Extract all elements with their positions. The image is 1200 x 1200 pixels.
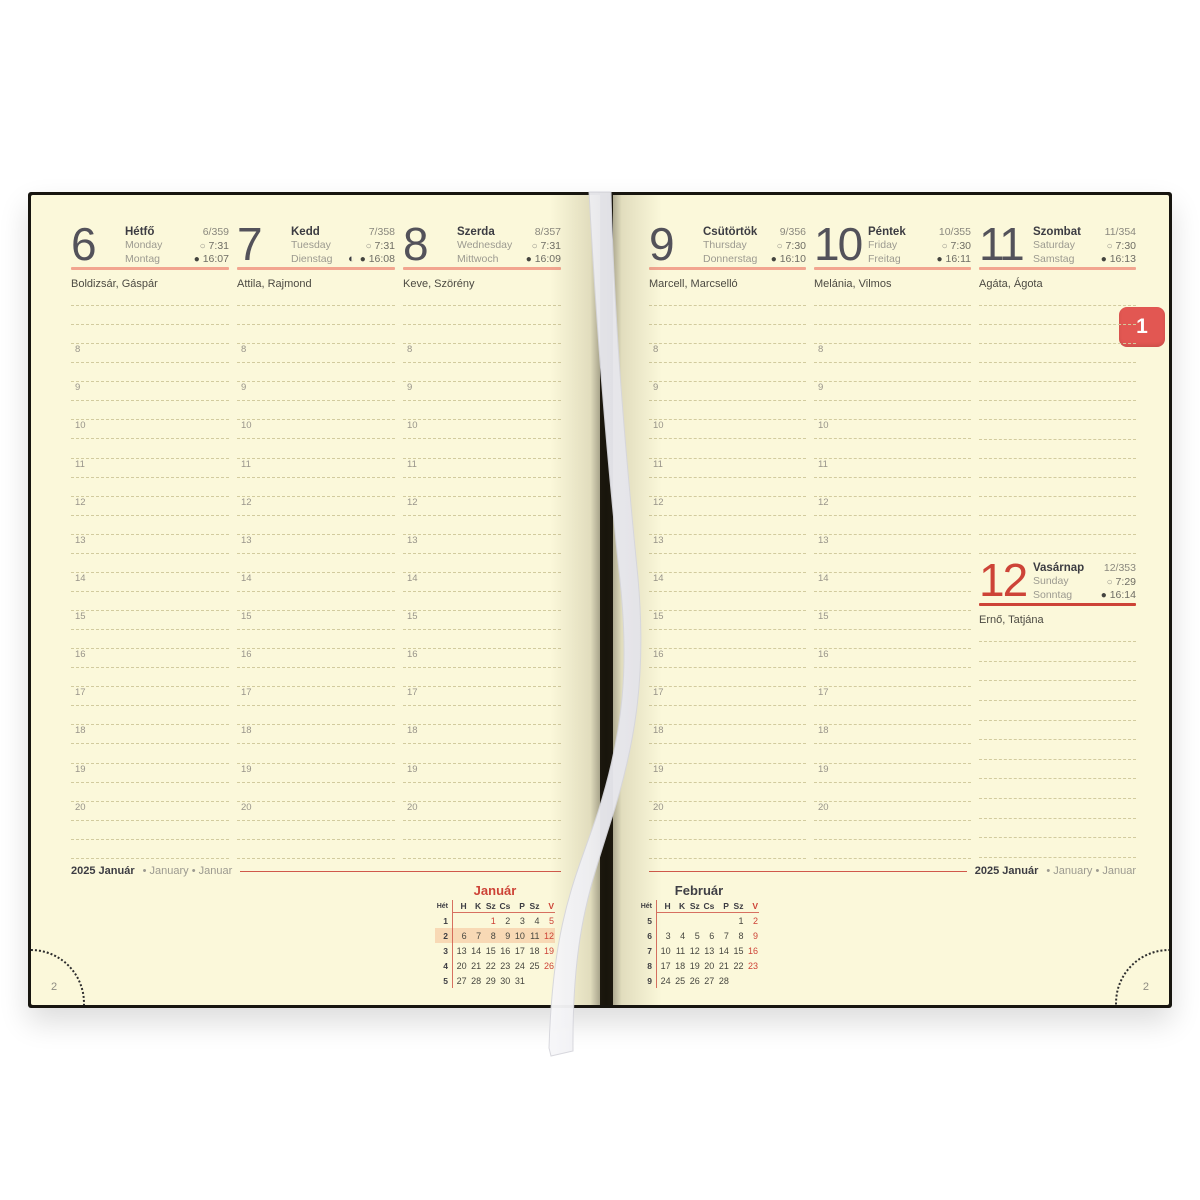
schedule-line: 16 bbox=[71, 649, 229, 668]
schedule-line bbox=[979, 838, 1136, 858]
week-days: 12 bbox=[657, 913, 759, 928]
schedule-line bbox=[979, 344, 1136, 363]
schedule-line: 10 bbox=[71, 420, 229, 439]
mini-calendar-day: 27 bbox=[453, 976, 468, 986]
sunrise-icon: ○ bbox=[777, 241, 783, 252]
weekday-header: P bbox=[511, 901, 526, 911]
schedule-line bbox=[237, 306, 395, 325]
schedule-line: 14 bbox=[237, 573, 395, 592]
day-header: 8SzerdaWednesdayMittwoch8/357○ 7:31● 16:… bbox=[403, 223, 561, 267]
schedule-rows: 891011121314151617181920 bbox=[649, 306, 806, 859]
schedule-line bbox=[71, 783, 229, 802]
schedule-line bbox=[979, 478, 1136, 497]
schedule-line: 15 bbox=[237, 611, 395, 630]
hour-label: 17 bbox=[75, 688, 86, 698]
schedule-line: 17 bbox=[814, 687, 971, 706]
mini-calendar-day: 24 bbox=[657, 976, 672, 986]
mini-calendar-day: 19 bbox=[686, 961, 701, 971]
mini-calendar-day: 28 bbox=[715, 976, 730, 986]
schedule-line bbox=[979, 681, 1136, 701]
schedule-line bbox=[649, 821, 806, 840]
footer-month-bold: 2025 Január bbox=[71, 865, 135, 877]
schedule-line bbox=[403, 630, 561, 649]
hour-label: 18 bbox=[407, 726, 418, 736]
schedule-line bbox=[649, 516, 806, 535]
schedule-rows: 891011121314151617181920 bbox=[237, 306, 395, 859]
schedule-line bbox=[649, 401, 806, 420]
sunrise-row: ○ 7:31 bbox=[348, 240, 395, 254]
mini-calendar-day: 23 bbox=[497, 961, 512, 971]
mini-calendar-day: 7 bbox=[715, 931, 730, 941]
name-day: Keve, Szörény bbox=[403, 270, 561, 306]
schedule-line bbox=[814, 840, 971, 859]
mini-calendar-day: 12 bbox=[540, 931, 555, 941]
schedule-line: 9 bbox=[71, 382, 229, 401]
mini-calendar-day: 4 bbox=[526, 916, 541, 926]
schedule-line bbox=[403, 401, 561, 420]
hour-label: 20 bbox=[75, 803, 86, 813]
schedule-line bbox=[237, 592, 395, 611]
mini-calendar-day: 23 bbox=[744, 961, 759, 971]
schedule-line: 10 bbox=[403, 420, 561, 439]
hour-label: 10 bbox=[818, 421, 829, 431]
mini-calendar-day: 3 bbox=[511, 916, 526, 926]
day-stats: 8/357○ 7:31● 16:09 bbox=[526, 223, 561, 267]
name-day: Ernő, Tatjána bbox=[979, 606, 1136, 642]
mini-calendar-day: 30 bbox=[497, 976, 512, 986]
mini-calendar-day: 19 bbox=[540, 946, 555, 956]
mini-calendar-day: 14 bbox=[468, 946, 483, 956]
day-number: 10 bbox=[814, 223, 868, 267]
hour-label: 12 bbox=[818, 498, 829, 508]
weekday-header: Sz bbox=[730, 901, 745, 911]
schedule-line: 9 bbox=[649, 382, 806, 401]
schedule-rows: 891011121314151617181920 bbox=[71, 306, 229, 859]
hour-label: 19 bbox=[241, 765, 252, 775]
mini-calendar-day: 26 bbox=[686, 976, 701, 986]
day-number: 7 bbox=[237, 223, 291, 267]
day-name-hu: Szombat bbox=[1033, 226, 1101, 239]
day-header: 6HétfőMondayMontag6/359○ 7:31● 16:07 bbox=[71, 223, 229, 267]
schedule-line: 8 bbox=[814, 344, 971, 363]
schedule-line bbox=[237, 783, 395, 802]
hour-label: 14 bbox=[75, 574, 86, 584]
schedule-line: 12 bbox=[71, 497, 229, 516]
schedule-line bbox=[403, 668, 561, 687]
schedule-line bbox=[237, 478, 395, 497]
schedule-line: 13 bbox=[71, 535, 229, 554]
schedule-line: 19 bbox=[403, 764, 561, 783]
hour-label: 18 bbox=[653, 726, 664, 736]
schedule-line: 8 bbox=[403, 344, 561, 363]
schedule-line: 17 bbox=[649, 687, 806, 706]
mini-calendar-day: 7 bbox=[468, 931, 483, 941]
sunrise-icon: ○ bbox=[1107, 241, 1113, 252]
schedule-line bbox=[649, 592, 806, 611]
weekday-header: Cs bbox=[497, 901, 512, 911]
schedule-line bbox=[71, 840, 229, 859]
week-number-corner: 2 bbox=[1143, 981, 1149, 993]
schedule-line: 12 bbox=[649, 497, 806, 516]
hour-label: 20 bbox=[653, 803, 664, 813]
schedule-line bbox=[71, 401, 229, 420]
week-column-header: Hét bbox=[435, 900, 453, 913]
hour-label: 14 bbox=[407, 574, 418, 584]
weekday-header: P bbox=[715, 901, 730, 911]
schedule-line bbox=[814, 306, 971, 325]
schedule-line bbox=[814, 668, 971, 687]
week-number: 8 bbox=[639, 958, 657, 973]
schedule-line bbox=[71, 478, 229, 497]
hour-label: 11 bbox=[407, 460, 417, 470]
schedule-line bbox=[649, 363, 806, 382]
day-names: CsütörtökThursdayDonnerstag bbox=[703, 223, 771, 267]
schedule-line: 16 bbox=[237, 649, 395, 668]
weekday-header: H bbox=[453, 901, 468, 911]
schedule-line bbox=[814, 630, 971, 649]
mini-calendar-day: 12 bbox=[686, 946, 701, 956]
schedule-line bbox=[403, 840, 561, 859]
hour-label: 11 bbox=[75, 460, 85, 470]
schedule-line bbox=[237, 516, 395, 535]
hour-label: 16 bbox=[653, 650, 664, 660]
hour-label: 20 bbox=[241, 803, 252, 813]
mini-calendar-day: 6 bbox=[701, 931, 716, 941]
schedule-line: 11 bbox=[814, 459, 971, 478]
sunrise-row: ○ 7:30 bbox=[937, 240, 971, 254]
schedule-rows bbox=[979, 642, 1136, 858]
mini-calendar-day: 21 bbox=[715, 961, 730, 971]
planner-book: 2025 Január • January • Januar JanuárHét… bbox=[28, 192, 1172, 1008]
schedule-line bbox=[814, 363, 971, 382]
day-column-6: 6HétfőMondayMontag6/359○ 7:31● 16:07Bold… bbox=[71, 223, 229, 859]
day-of-year: 11/354 bbox=[1101, 226, 1136, 240]
schedule-line bbox=[979, 799, 1136, 819]
hour-label: 10 bbox=[75, 421, 86, 431]
day-of-year: 7/358 bbox=[348, 226, 395, 240]
mini-calendar-day: 29 bbox=[482, 976, 497, 986]
schedule-line bbox=[237, 363, 395, 382]
hour-label: 16 bbox=[818, 650, 829, 660]
sunday-block: 12VasárnapSundaySonntag12/353○ 7:29● 16:… bbox=[979, 559, 1136, 858]
week-number-corner: 2 bbox=[51, 981, 57, 993]
weekday-header: Sz bbox=[526, 901, 541, 911]
day-name-en: Thursday bbox=[703, 239, 771, 253]
schedule-line bbox=[979, 535, 1136, 554]
day-name-en: Wednesday bbox=[457, 239, 526, 253]
day-name-de: Donnerstag bbox=[703, 253, 771, 267]
weekday-header: K bbox=[468, 901, 483, 911]
schedule-line: 8 bbox=[649, 344, 806, 363]
schedule-line: 18 bbox=[71, 725, 229, 744]
day-names: HétfőMondayMontag bbox=[125, 223, 194, 267]
week-number: 4 bbox=[435, 958, 453, 973]
hour-label: 12 bbox=[653, 498, 664, 508]
mini-calendar-week-row: 710111213141516 bbox=[639, 943, 759, 958]
schedule-line: 10 bbox=[237, 420, 395, 439]
sunset-row: ● 16:07 bbox=[194, 253, 229, 267]
schedule-line bbox=[979, 363, 1136, 382]
hour-label: 20 bbox=[407, 803, 418, 813]
schedule-line: 19 bbox=[71, 764, 229, 783]
hour-label: 17 bbox=[407, 688, 418, 698]
sunset-row: ● 16:09 bbox=[526, 253, 561, 267]
sunrise-row: ○ 7:29 bbox=[1101, 576, 1136, 590]
mini-calendar-day: 2 bbox=[497, 916, 512, 926]
schedule-line bbox=[237, 630, 395, 649]
schedule-line bbox=[403, 744, 561, 763]
hour-label: 11 bbox=[653, 460, 663, 470]
week-days: 10111213141516 bbox=[657, 943, 759, 958]
sunrise-row: ○ 7:31 bbox=[526, 240, 561, 254]
hour-label: 19 bbox=[818, 765, 829, 775]
hour-label: 8 bbox=[653, 345, 658, 355]
schedule-line bbox=[649, 630, 806, 649]
schedule-line: 18 bbox=[649, 725, 806, 744]
schedule-line bbox=[403, 706, 561, 725]
schedule-line: 17 bbox=[237, 687, 395, 706]
mini-calendar-title: Február bbox=[639, 883, 759, 900]
day-of-year: 8/357 bbox=[526, 226, 561, 240]
mini-calendar-day: 1 bbox=[730, 916, 745, 926]
schedule-line: 18 bbox=[814, 725, 971, 744]
hour-label: 14 bbox=[241, 574, 252, 584]
schedule-line: 11 bbox=[237, 459, 395, 478]
schedule-line bbox=[71, 592, 229, 611]
mini-calendar-day: 18 bbox=[672, 961, 687, 971]
schedule-line bbox=[649, 478, 806, 497]
mini-calendar-day: 17 bbox=[511, 946, 526, 956]
schedule-line: 12 bbox=[814, 497, 971, 516]
sunrise-row: ○ 7:30 bbox=[771, 240, 806, 254]
week-number: 5 bbox=[435, 973, 453, 988]
weekday-header: Cs bbox=[701, 901, 716, 911]
schedule-line bbox=[71, 439, 229, 458]
schedule-line bbox=[237, 706, 395, 725]
schedule-line bbox=[979, 325, 1136, 344]
day-name-en: Saturday bbox=[1033, 239, 1101, 253]
hour-label: 17 bbox=[241, 688, 252, 698]
mini-calendar-day: 25 bbox=[672, 976, 687, 986]
mini-calendar-day: 10 bbox=[657, 946, 672, 956]
mini-calendar-day: 21 bbox=[468, 961, 483, 971]
sunset-icon: ● bbox=[771, 254, 777, 265]
mini-calendar-header-row: HétHKSzCsPSzV bbox=[639, 900, 759, 913]
weekday-headers: HKSzCsPSzV bbox=[453, 900, 555, 913]
schedule-line bbox=[979, 516, 1136, 535]
schedule-line: 12 bbox=[237, 497, 395, 516]
week-days: 2425262728 bbox=[657, 973, 759, 988]
day-number: 9 bbox=[649, 223, 703, 267]
mini-calendar-day: 18 bbox=[526, 946, 541, 956]
hour-label: 13 bbox=[75, 536, 86, 546]
schedule-line: 14 bbox=[649, 573, 806, 592]
schedule-line: 20 bbox=[237, 802, 395, 821]
schedule-line bbox=[979, 497, 1136, 516]
day-name-de: Dienstag bbox=[291, 253, 348, 267]
schedule-line bbox=[71, 706, 229, 725]
schedule-line bbox=[814, 325, 971, 344]
day-column-7: 7KeddTuesdayDienstag7/358○ 7:31◐● 16:08A… bbox=[237, 223, 395, 859]
schedule-line bbox=[649, 554, 806, 573]
footer-month-bold: 2025 Január bbox=[975, 865, 1039, 877]
schedule-line bbox=[979, 819, 1136, 839]
week-number: 6 bbox=[639, 928, 657, 943]
schedule-line: 16 bbox=[814, 649, 971, 668]
mini-calendar-title: Január bbox=[435, 883, 555, 900]
sunset-icon: ● bbox=[1101, 590, 1107, 601]
hour-label: 13 bbox=[407, 536, 418, 546]
hour-label: 12 bbox=[75, 498, 86, 508]
mini-calendar-day: 22 bbox=[482, 961, 497, 971]
name-day: Melánia, Vilmos bbox=[814, 270, 971, 306]
schedule-line: 15 bbox=[649, 611, 806, 630]
schedule-line bbox=[979, 440, 1136, 459]
schedule-line bbox=[403, 821, 561, 840]
name-day: Boldizsár, Gáspár bbox=[71, 270, 229, 306]
hour-label: 9 bbox=[407, 383, 412, 393]
schedule-line: 15 bbox=[814, 611, 971, 630]
hour-label: 12 bbox=[407, 498, 418, 508]
hour-label: 18 bbox=[241, 726, 252, 736]
mini-calendar-day: 20 bbox=[453, 961, 468, 971]
sunset-icon: ● bbox=[194, 254, 200, 265]
week-number: 5 bbox=[639, 913, 657, 928]
mini-calendar-day: 11 bbox=[672, 946, 687, 956]
schedule-line bbox=[979, 721, 1136, 741]
schedule-line: 9 bbox=[403, 382, 561, 401]
sunset-icon: ● bbox=[360, 254, 366, 265]
schedule-line: 18 bbox=[237, 725, 395, 744]
week-column-header: Hét bbox=[639, 900, 657, 913]
perforated-corner-arc bbox=[31, 949, 85, 1005]
schedule-line bbox=[814, 516, 971, 535]
weekday-header: V bbox=[540, 901, 555, 911]
hour-label: 17 bbox=[818, 688, 829, 698]
day-names: SzerdaWednesdayMittwoch bbox=[457, 223, 526, 267]
right-page-footer: 2025 Január • January • Januar bbox=[649, 863, 1136, 879]
schedule-line bbox=[237, 668, 395, 687]
mini-calendar-week-row: 92425262728 bbox=[639, 973, 759, 988]
day-of-year: 9/356 bbox=[771, 226, 806, 240]
schedule-line: 20 bbox=[71, 802, 229, 821]
schedule-rows: 891011121314151617181920 bbox=[814, 306, 971, 859]
day-header: 12VasárnapSundaySonntag12/353○ 7:29● 16:… bbox=[979, 559, 1136, 603]
footer-rule bbox=[649, 871, 967, 872]
schedule-line bbox=[814, 439, 971, 458]
schedule-line: 13 bbox=[237, 535, 395, 554]
hour-label: 15 bbox=[653, 612, 664, 622]
hour-label: 13 bbox=[241, 536, 252, 546]
hour-label: 14 bbox=[653, 574, 664, 584]
week-days: 13141516171819 bbox=[453, 943, 555, 958]
schedule-line bbox=[403, 554, 561, 573]
mini-calendar-day: 4 bbox=[672, 931, 687, 941]
schedule-line: 11 bbox=[403, 459, 561, 478]
schedule-line bbox=[403, 478, 561, 497]
mini-calendar-day: 24 bbox=[511, 961, 526, 971]
schedule-line bbox=[979, 459, 1136, 478]
schedule-line bbox=[237, 744, 395, 763]
schedule-line: 14 bbox=[71, 573, 229, 592]
hour-label: 19 bbox=[407, 765, 418, 775]
schedule-line bbox=[71, 744, 229, 763]
day-name-de: Montag bbox=[125, 253, 194, 267]
schedule-line bbox=[979, 382, 1136, 401]
schedule-line bbox=[403, 439, 561, 458]
schedule-line bbox=[979, 420, 1136, 439]
mini-calendar-week-row: 817181920212223 bbox=[639, 958, 759, 973]
schedule-line bbox=[979, 662, 1136, 682]
sunrise-row: ○ 7:30 bbox=[1101, 240, 1136, 254]
day-header: 10PéntekFridayFreitag10/355○ 7:30● 16:11 bbox=[814, 223, 971, 267]
mini-calendar-day: 1 bbox=[482, 916, 497, 926]
week-days: 2728293031 bbox=[453, 973, 555, 988]
footer-rule bbox=[240, 871, 561, 872]
schedule-line bbox=[979, 401, 1136, 420]
schedule-line bbox=[237, 439, 395, 458]
schedule-line: 10 bbox=[649, 420, 806, 439]
mini-calendar-header-row: HétHKSzCsPSzV bbox=[435, 900, 555, 913]
day-name-en: Friday bbox=[868, 239, 937, 253]
schedule-line bbox=[814, 821, 971, 840]
sunset-row: ● 16:13 bbox=[1101, 253, 1136, 267]
schedule-line bbox=[649, 706, 806, 725]
schedule-line bbox=[979, 306, 1136, 325]
day-column-9: 9CsütörtökThursdayDonnerstag9/356○ 7:30●… bbox=[649, 223, 806, 859]
sunset-icon: ● bbox=[1101, 254, 1107, 265]
hour-label: 18 bbox=[75, 726, 86, 736]
hour-label: 8 bbox=[241, 345, 246, 355]
schedule-line: 19 bbox=[814, 764, 971, 783]
mini-calendar-day: 22 bbox=[730, 961, 745, 971]
schedule-line bbox=[814, 744, 971, 763]
mini-calendar-day: 20 bbox=[701, 961, 716, 971]
sunset-row: ● 16:11 bbox=[937, 253, 971, 267]
schedule-line bbox=[403, 306, 561, 325]
hour-label: 15 bbox=[241, 612, 252, 622]
schedule-line bbox=[814, 401, 971, 420]
mini-calendar-day: 14 bbox=[715, 946, 730, 956]
schedule-line bbox=[403, 363, 561, 382]
week-number: 9 bbox=[639, 973, 657, 988]
mini-calendar-day: 17 bbox=[657, 961, 672, 971]
name-day: Attila, Rajmond bbox=[237, 270, 395, 306]
day-header: 7KeddTuesdayDienstag7/358○ 7:31◐● 16:08 bbox=[237, 223, 395, 267]
schedule-line: 9 bbox=[814, 382, 971, 401]
week-number: 1 bbox=[435, 913, 453, 928]
mini-calendar-day: 13 bbox=[453, 946, 468, 956]
day-of-year: 12/353 bbox=[1101, 562, 1136, 576]
day-name-de: Freitag bbox=[868, 253, 937, 267]
mini-calendar-day: 8 bbox=[730, 931, 745, 941]
schedule-line bbox=[649, 744, 806, 763]
schedule-line: 17 bbox=[71, 687, 229, 706]
schedule-line: 16 bbox=[403, 649, 561, 668]
hour-label: 9 bbox=[241, 383, 246, 393]
schedule-line: 11 bbox=[71, 459, 229, 478]
schedule-line: 20 bbox=[814, 802, 971, 821]
schedule-line: 15 bbox=[403, 611, 561, 630]
mini-calendar-day: 16 bbox=[497, 946, 512, 956]
day-header: 11SzombatSaturdaySamstag11/354○ 7:30● 16… bbox=[979, 223, 1136, 267]
schedule-line: 17 bbox=[403, 687, 561, 706]
day-name-en: Monday bbox=[125, 239, 194, 253]
schedule-line bbox=[71, 325, 229, 344]
day-stats: 11/354○ 7:30● 16:13 bbox=[1101, 223, 1136, 267]
sunrise-icon: ○ bbox=[1107, 577, 1113, 588]
mini-calendar-week-row: 63456789 bbox=[639, 928, 759, 943]
